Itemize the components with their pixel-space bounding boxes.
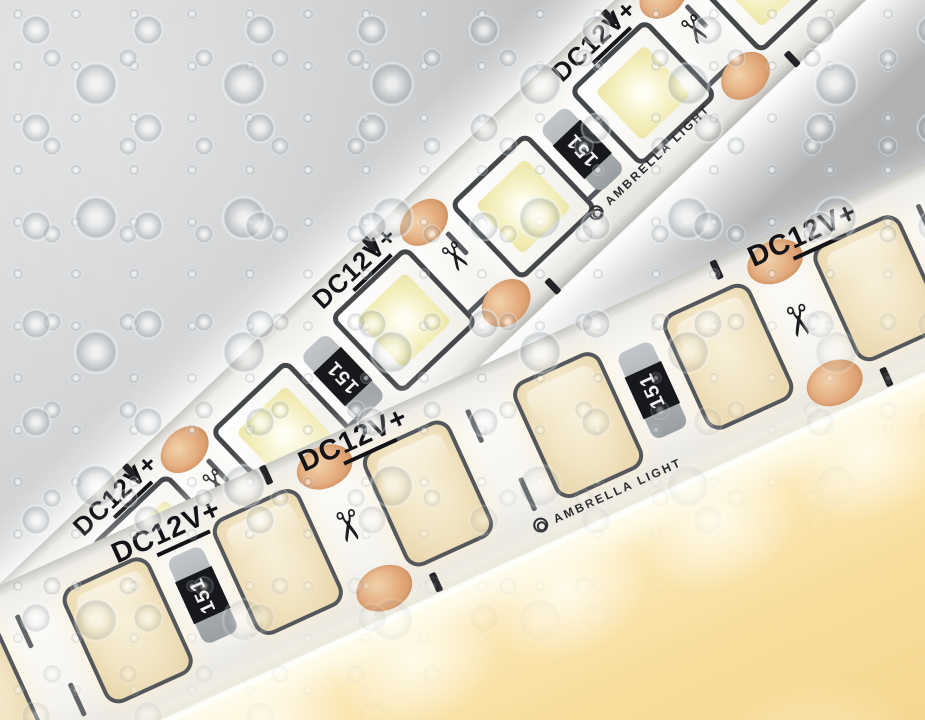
led-phosphor bbox=[475, 158, 571, 254]
led-gloss bbox=[0, 637, 3, 698]
product-photo: 151 151 151 151 ✂ ✂ ✂ DC12V+ DC12V+ DC12… bbox=[0, 0, 925, 720]
led-phosphor bbox=[356, 272, 452, 368]
resistor-value: 151 bbox=[185, 574, 221, 617]
resistor-value: 151 bbox=[634, 369, 670, 412]
